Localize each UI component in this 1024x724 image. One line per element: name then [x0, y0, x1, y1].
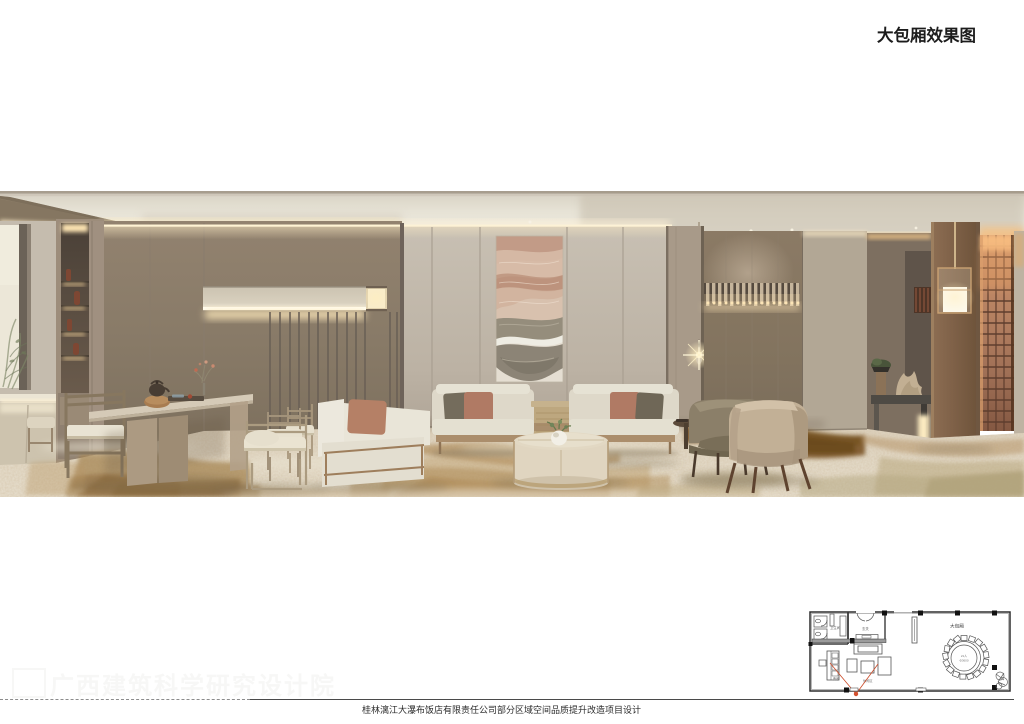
svg-text:大包厢: 大包厢	[950, 623, 964, 630]
svg-text:Φ3600: Φ3600	[959, 659, 968, 663]
svg-text:21人: 21人	[961, 654, 967, 658]
svg-text:备餐: 备餐	[833, 676, 840, 681]
svg-text:卫生间: 卫生间	[830, 625, 841, 630]
svg-text:玄关: 玄关	[862, 626, 869, 631]
